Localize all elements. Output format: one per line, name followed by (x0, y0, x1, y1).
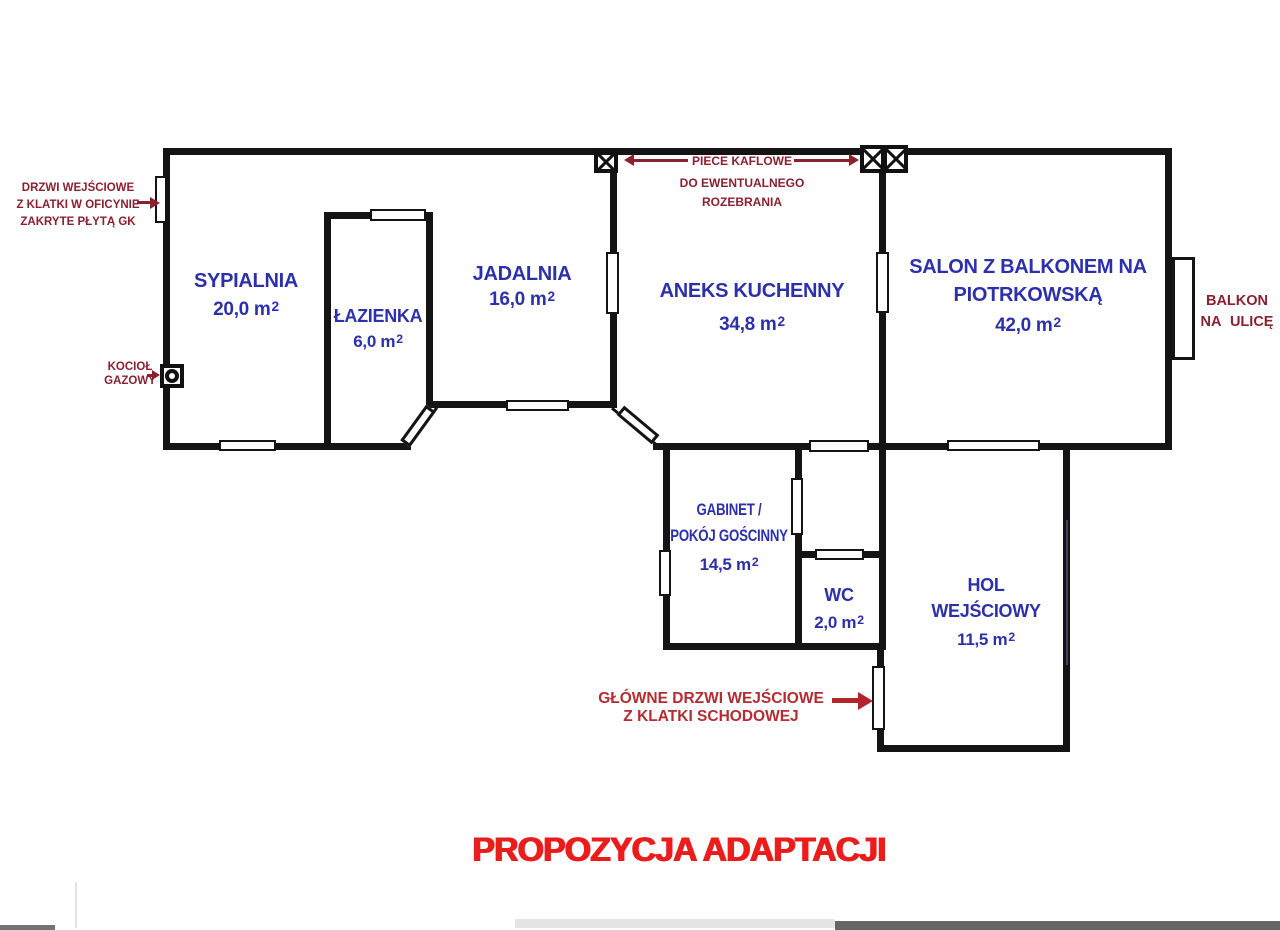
annotation-line: Z KLATKI W OFICYNIE (16, 197, 139, 214)
annotation-line: DO EWENTUALNEGO (680, 174, 805, 193)
room-name-line2: WEJŚCIOWY (931, 598, 1040, 624)
room-area: 2,0 m (814, 613, 856, 632)
balcony-outline (1172, 257, 1195, 360)
room-label-sypialnia: SYPIALNIA 20,0 m2 (194, 269, 298, 321)
annotation-line: ZAKRYTE PŁYTĄ GK (16, 214, 139, 231)
window-glyph (947, 440, 1040, 451)
boiler-arrow-head (152, 370, 160, 380)
scan-artifact (75, 882, 77, 928)
area-superscript: 2 (778, 314, 785, 329)
area-superscript: 2 (1054, 315, 1061, 330)
annotation-line: DRZWI WEJŚCIOWE (16, 180, 139, 197)
wall (163, 148, 1172, 155)
page-title: PROPOZYCJA ADAPTACJI (472, 831, 885, 870)
area-superscript: 2 (396, 332, 403, 346)
gas-boiler-icon (160, 364, 184, 388)
balcony-annotation: BALKON NA ULICĘ (1201, 291, 1274, 333)
entry-door-arrow-head (150, 197, 160, 209)
room-name: ŁAZIENKA (334, 305, 423, 327)
stoves-arrow-right (794, 159, 850, 162)
room-name: WC (814, 583, 864, 608)
room-label-salon: SALON Z BALKONEM NA PIOTRKOWSKĄ 42,0 m2 (909, 253, 1147, 337)
door-leaf (400, 405, 436, 448)
annotation-line: BALKON (1201, 291, 1274, 312)
room-name: JADALNIA (473, 262, 572, 286)
tile-stove-icon (594, 151, 618, 173)
room-label-jadalnia: JADALNIA 16,0 m2 (473, 262, 572, 311)
room-label-aneks-kuchenny: ANEKS KUCHENNY 34,8 m2 (660, 279, 845, 336)
window-glyph (370, 209, 426, 221)
window-glyph (219, 440, 276, 451)
area-superscript: 2 (752, 555, 759, 569)
wall (163, 443, 411, 450)
area-superscript: 2 (857, 613, 864, 627)
room-name-line1: GABINET / (670, 497, 788, 523)
tile-stoves-annotation: PIECE KAFLOWE DO EWENTUALNEGO ROZEBRANIA (680, 152, 805, 212)
room-label-lazienka: ŁAZIENKA 6,0 m2 (334, 305, 423, 352)
scan-artifact (515, 919, 835, 928)
room-label-hol: HOL WEJŚCIOWY 11,5 m2 (931, 572, 1040, 653)
main-door-arrow (832, 698, 860, 703)
room-area: 16,0 m (489, 289, 546, 310)
wall (879, 148, 886, 650)
stoves-arrow-left (633, 159, 688, 162)
wall (663, 643, 886, 650)
annotation-line: KOCIOŁ (104, 361, 156, 375)
room-name-line2: PIOTRKOWSKĄ (909, 281, 1147, 309)
door-leaf (617, 406, 660, 445)
room-name-line2: POKÓJ GOŚCINNY (670, 523, 788, 549)
scan-fold-line (1066, 520, 1068, 665)
window-glyph (606, 252, 619, 314)
main-door-annotation: GŁÓWNE DRZWI WEJŚCIOWE Z KLATKI SCHODOWE… (598, 690, 824, 726)
scan-artifact (0, 925, 55, 930)
room-area: 20,0 m (213, 299, 270, 320)
room-area: 11,5 m (957, 630, 1007, 649)
room-name-line1: SALON Z BALKONEM NA (909, 253, 1147, 281)
wall (324, 212, 331, 450)
area-superscript: 2 (1008, 630, 1015, 644)
room-area: 42,0 m (995, 315, 1052, 336)
area-superscript: 2 (272, 299, 279, 314)
room-label-wc: WC 2,0 m2 (814, 583, 864, 635)
room-name: SYPIALNIA (194, 269, 298, 293)
main-entrance-door-glyph (872, 666, 885, 730)
tile-stove-icon (860, 145, 885, 173)
wall (877, 745, 1070, 752)
window-glyph (876, 252, 889, 313)
main-door-arrow-head (858, 692, 873, 710)
annotation-line: PIECE KAFLOWE (680, 152, 805, 171)
room-area: 6,0 m (353, 332, 395, 351)
entry-door-annotation: DRZWI WEJŚCIOWE Z KLATKI W OFICYNIE ZAKR… (16, 180, 139, 231)
room-area: 34,8 m (719, 314, 776, 335)
window-glyph (506, 400, 569, 411)
room-name: ANEKS KUCHENNY (660, 279, 845, 303)
scan-artifact (835, 921, 1280, 930)
annotation-line: NA ULICĘ (1201, 312, 1274, 333)
room-name-line1: HOL (931, 572, 1040, 598)
annotation-line: Z KLATKI SCHODOWEJ (598, 708, 824, 726)
wall (1165, 148, 1172, 450)
floor-plan: SYPIALNIA 20,0 m2 ŁAZIENKA 6,0 m2 JADALN… (0, 0, 1280, 930)
tile-stove-icon (883, 145, 908, 173)
wall (426, 212, 433, 408)
room-label-gabinet: GABINET / POKÓJ GOŚCINNY 14,5 m2 (654, 497, 805, 578)
room-area: 14,5 m (700, 555, 751, 574)
door-glyph (809, 440, 869, 452)
annotation-line: GŁÓWNE DRZWI WEJŚCIOWE (598, 690, 824, 708)
annotation-line: ROZEBRANIA (680, 193, 805, 212)
stoves-arrow-right-head (849, 154, 859, 166)
area-superscript: 2 (548, 289, 555, 304)
door-glyph (815, 549, 864, 560)
